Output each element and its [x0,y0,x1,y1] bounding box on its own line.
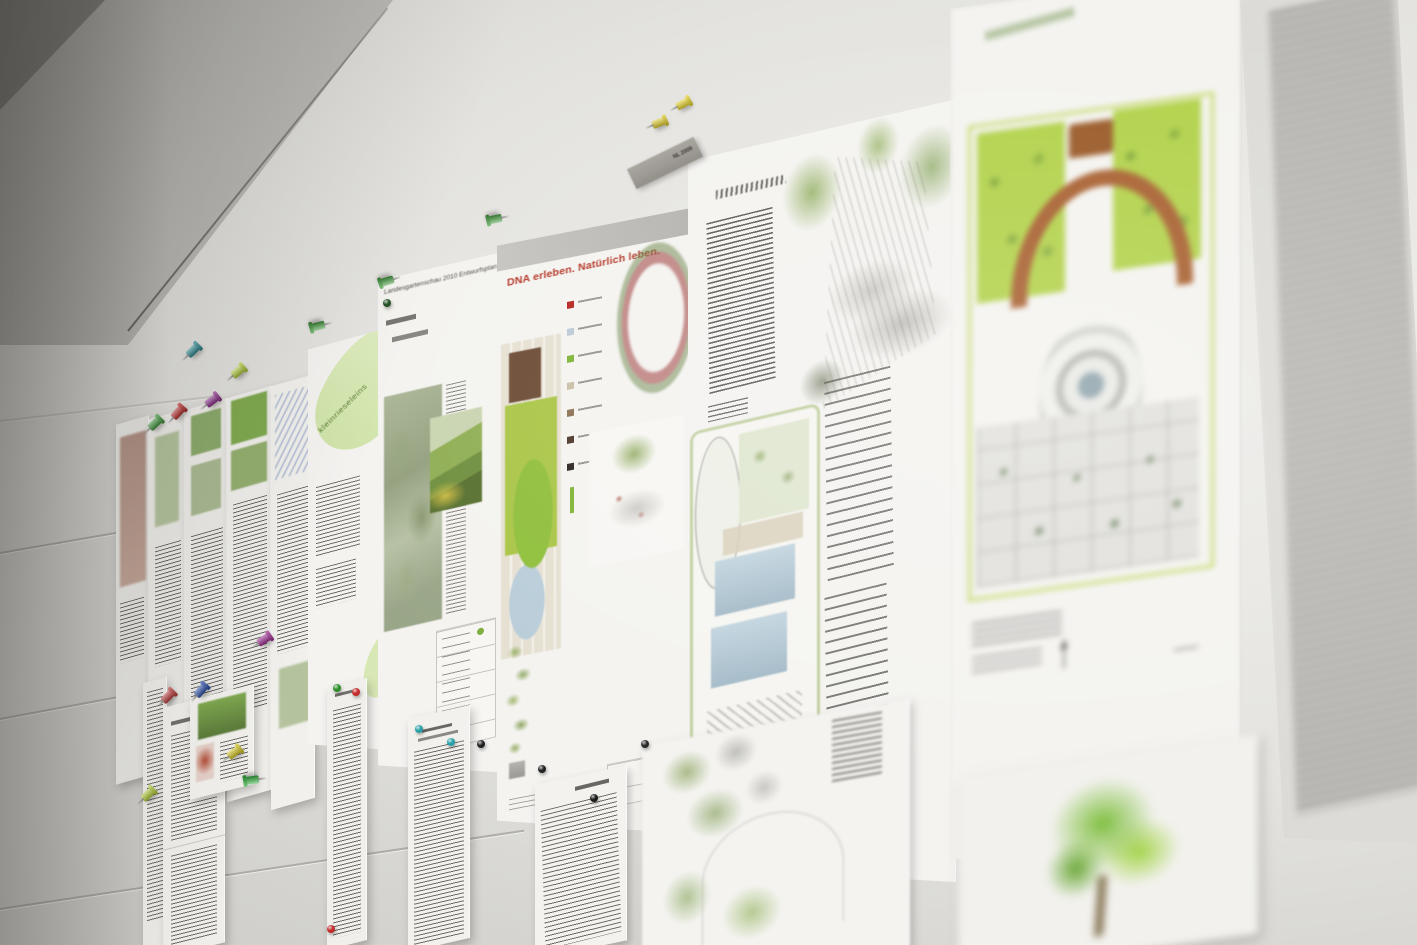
push-pin [352,688,360,696]
push-pin [380,275,395,286]
push-pin [641,740,649,748]
push-pin [590,794,598,802]
push-pin [311,321,326,332]
push-pin [488,214,502,225]
push-pin [447,738,455,746]
push-pin [415,725,423,733]
push-pin [327,925,335,933]
push-pin [651,117,666,129]
push-pin [147,417,162,432]
push-pin [140,788,155,803]
photo-wall-scene: kleinrieseleins Landesgartenschau 2010 E… [0,0,1417,945]
push-pin [230,365,245,379]
push-pin [256,633,271,647]
push-pin [477,740,485,748]
push-pin [246,775,260,785]
push-pin [333,684,341,692]
push-pin [204,394,219,408]
push-pin [226,746,241,760]
push-pin [675,97,690,110]
push-pin [185,344,200,359]
push-pin [193,683,207,698]
push-pins-layer [0,0,1417,945]
push-pin [160,690,175,705]
push-pin [383,299,391,307]
push-pin [538,765,546,773]
push-pin [170,405,185,420]
